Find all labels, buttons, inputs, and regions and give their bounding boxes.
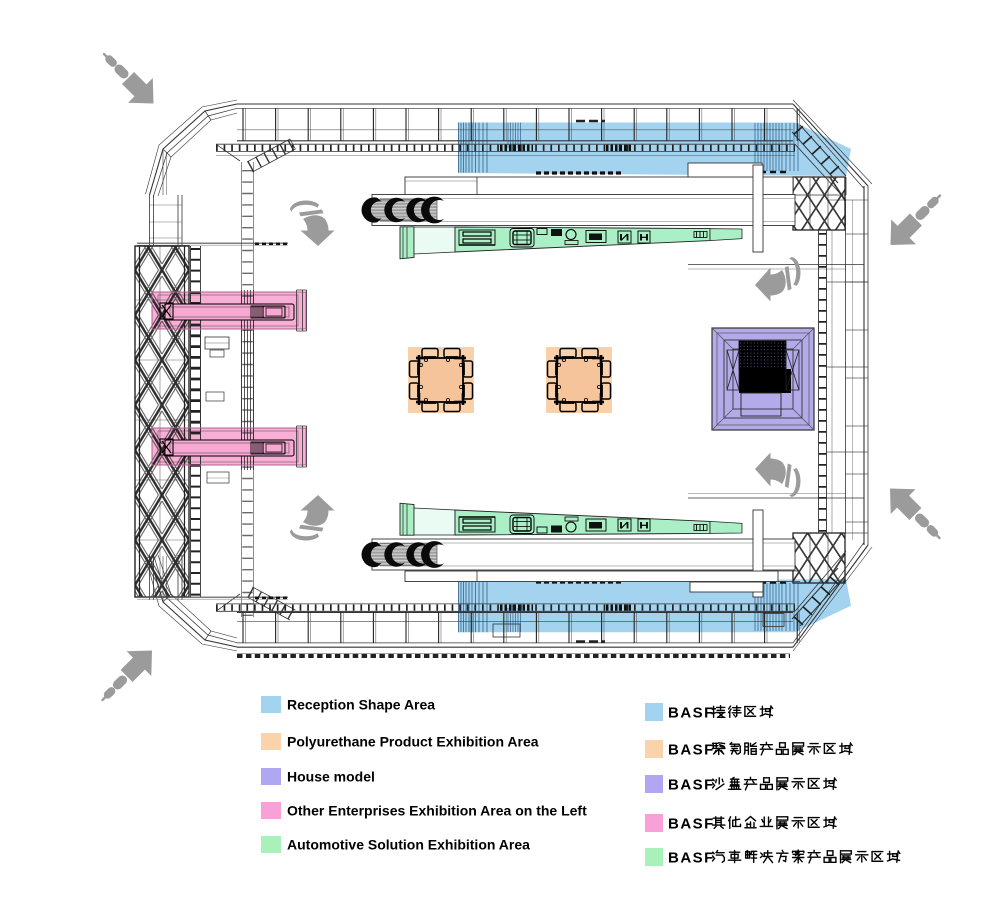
svg-text:BASF: BASF [668, 705, 715, 722]
svg-text:Automotive Solution Exhibition: Automotive Solution Exhibition Area [287, 837, 530, 853]
svg-text:Reception Shape Area: Reception Shape Area [287, 697, 435, 713]
svg-text:House model: House model [287, 769, 375, 785]
svg-text:Polyurethane Product Exhibitio: Polyurethane Product Exhibition Area [287, 734, 539, 750]
svg-text:BASF: BASF [668, 777, 715, 794]
svg-text:BASF: BASF [668, 742, 715, 759]
svg-text:BASF: BASF [668, 850, 715, 867]
svg-text:Other Enterprises Exhibition A: Other Enterprises Exhibition Area on the… [287, 803, 587, 819]
svg-text:BASF: BASF [668, 816, 715, 833]
